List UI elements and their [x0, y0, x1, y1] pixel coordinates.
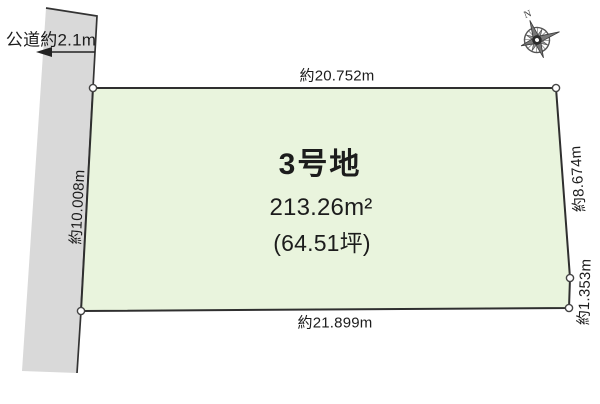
vertex-marker	[552, 84, 559, 91]
dimension-bottom: 約21.899m	[298, 312, 373, 333]
vertex-marker	[565, 304, 572, 311]
vertex-marker	[89, 84, 96, 91]
vertex-marker	[77, 307, 84, 314]
compass-north-label: N	[522, 8, 533, 21]
compass-rose-icon: N	[510, 1, 566, 63]
dimension-top: 約20.752m	[300, 65, 375, 86]
site-plan-diagram: N 公道約2.1m 約20.752m 約21.899m 約8.674m 約1.3…	[0, 0, 600, 404]
plot-area-m2: 213.26m²	[270, 194, 373, 222]
plot-name: 3号地	[279, 139, 362, 183]
plot-area-tsubo: (64.51坪)	[273, 224, 370, 258]
road-width-label: 公道約2.1m	[6, 26, 96, 51]
vertex-marker	[566, 274, 573, 281]
dimension-left: 約10.008m	[65, 169, 90, 245]
dimension-right-lower: 約1.353m	[572, 258, 595, 325]
